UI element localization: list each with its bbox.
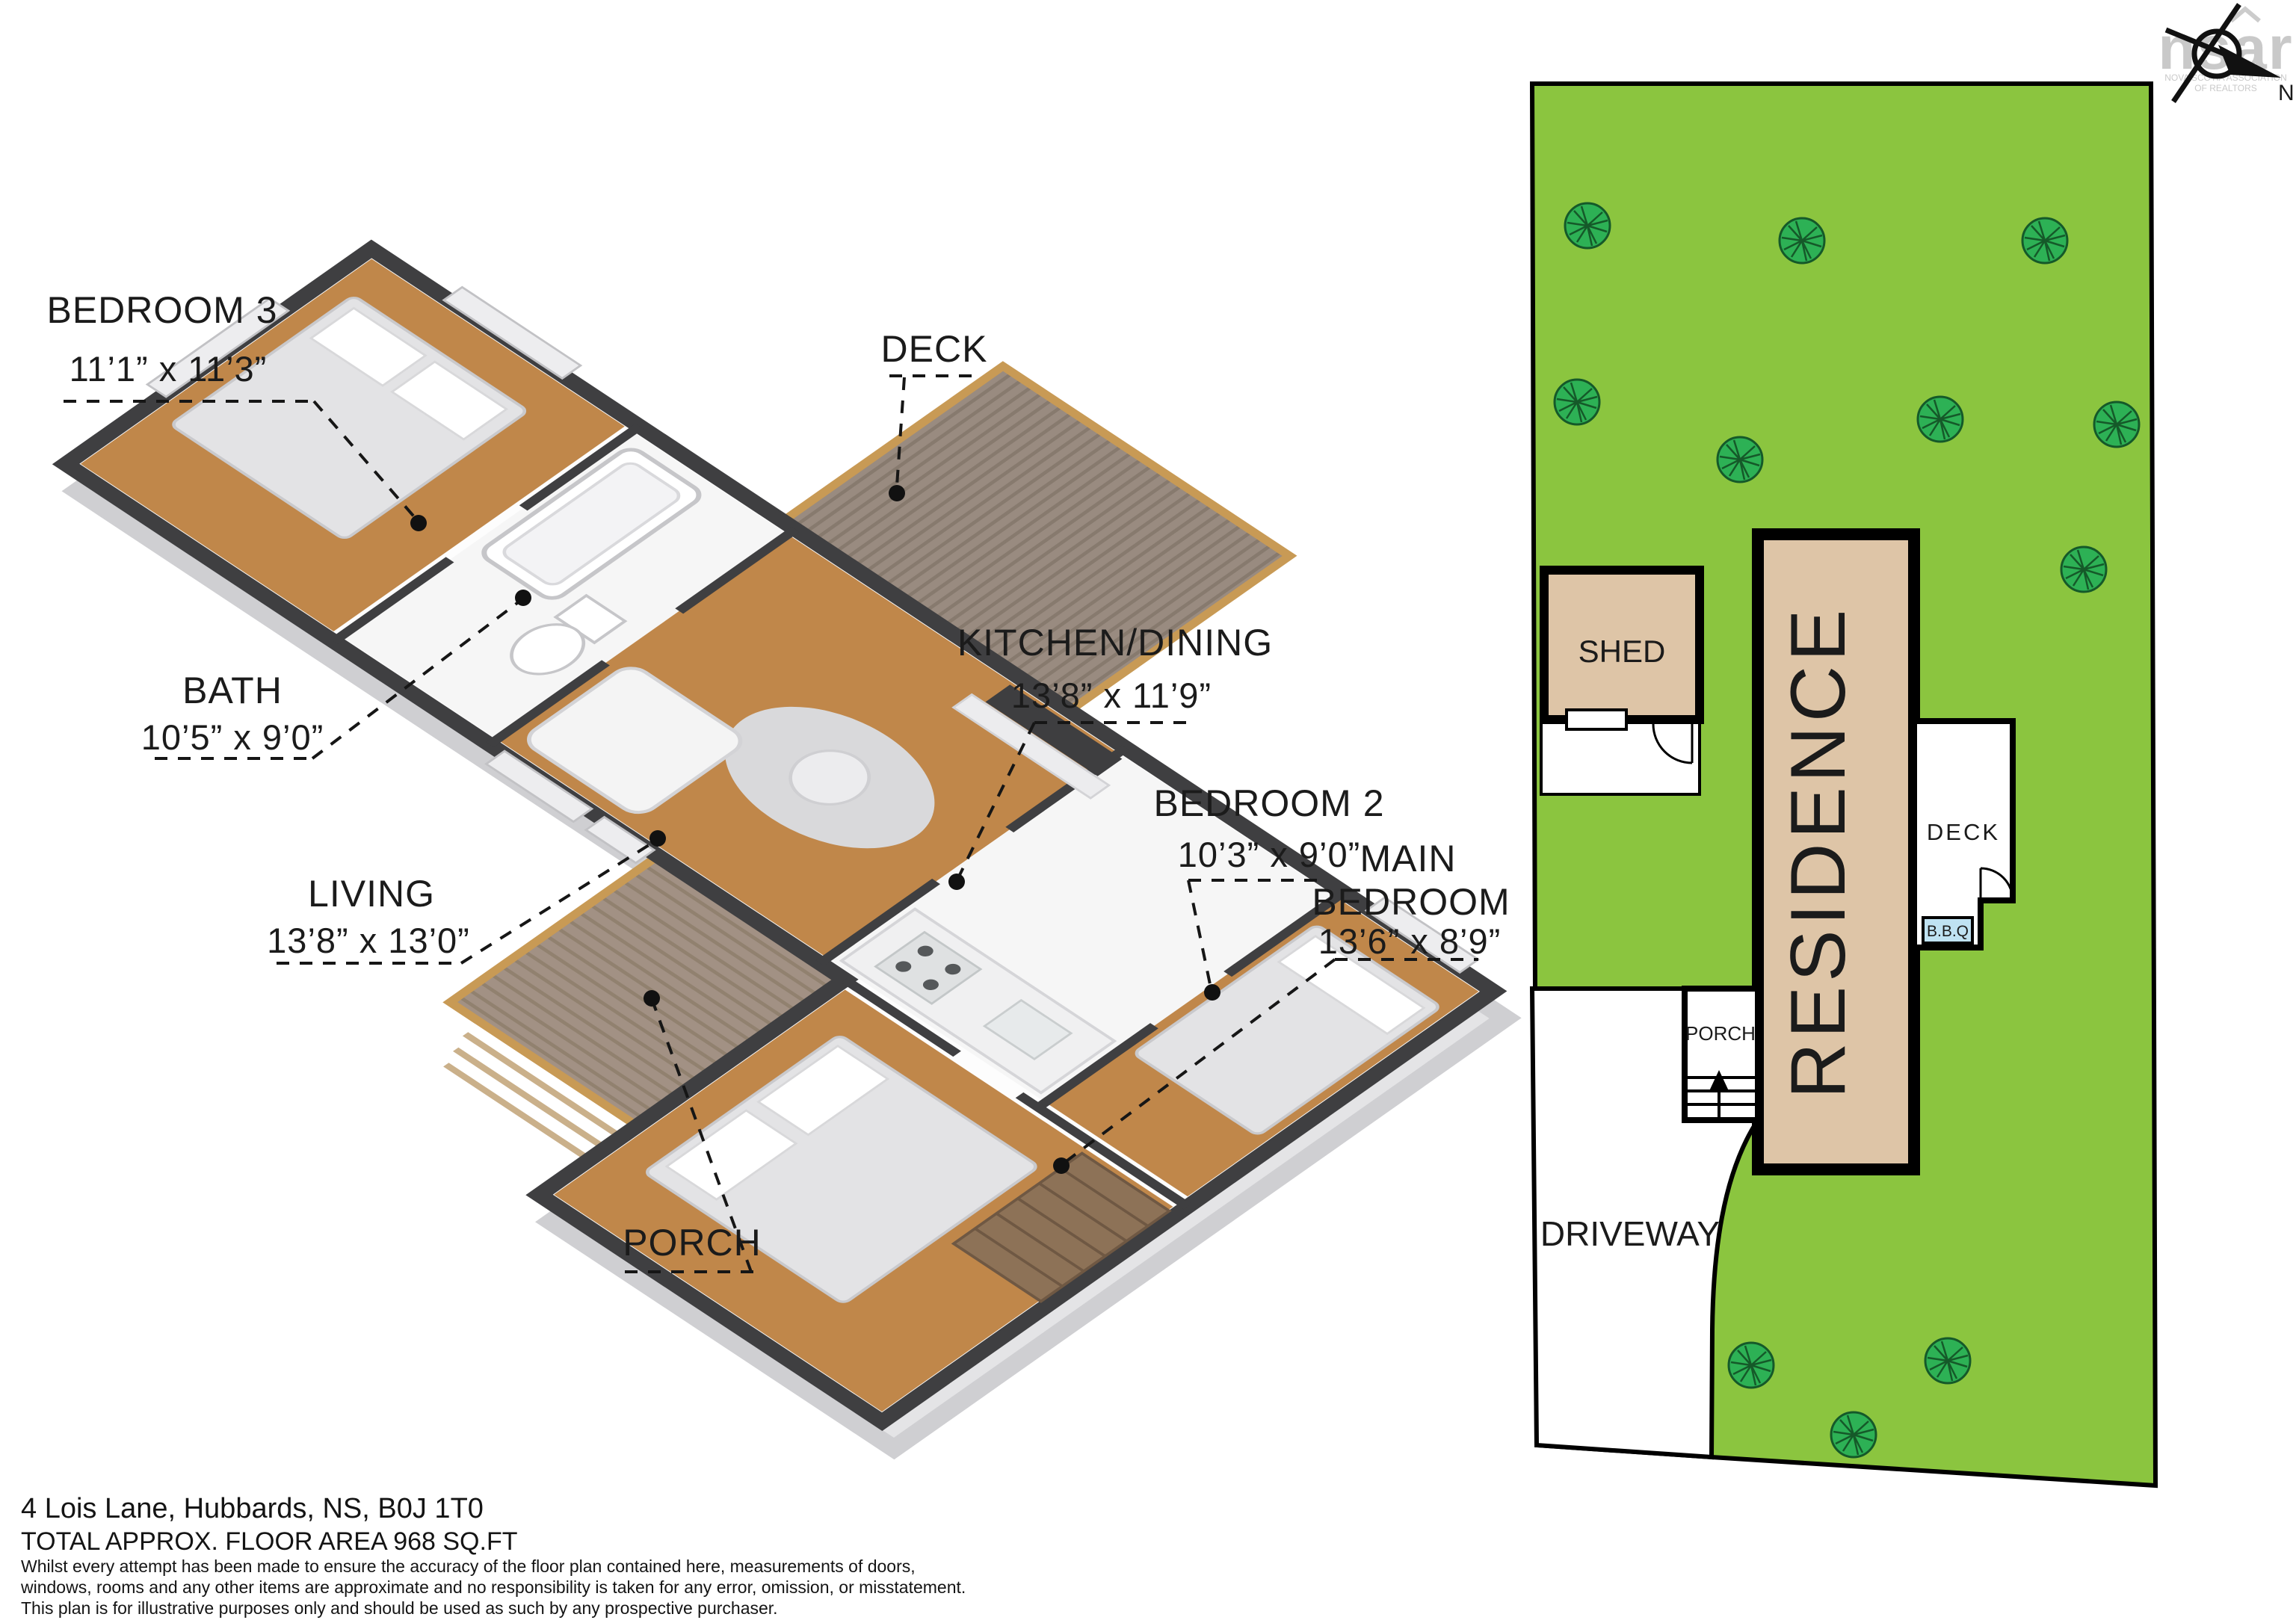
watermark-caption-2: OF REALTORS: [2194, 83, 2257, 93]
kitchen-dining-dims: 13’8” x 11’9”: [1011, 676, 1212, 715]
porch-label: PORCH: [623, 1222, 762, 1264]
compass-north: N: [2278, 81, 2295, 105]
shed-label: SHED: [1578, 634, 1666, 669]
floorplan-3d: BEDROOM 3 11’1” x 11’3” DECK BATH 10’5” …: [0, 83, 1714, 1448]
tree-icon: [1925, 1338, 1970, 1383]
bedroom2-label: BEDROOM 2: [1153, 782, 1384, 824]
property-address: 4 Lois Lane, Hubbards, NS, B0J 1T0: [21, 1493, 484, 1525]
bedroom3-label: BEDROOM 3: [46, 289, 277, 331]
floorplan-sheet: BEDROOM 3 11’1” x 11’3” DECK BATH 10’5” …: [0, 0, 2296, 1623]
tree-icon: [2061, 547, 2106, 592]
site-plan: DRIVEWAY SHED RESIDENCE DECK B.B.: [1532, 84, 2155, 1486]
tree-icon: [1729, 1343, 1774, 1388]
main-bedroom-dims: 13’6” x 8’9”: [1318, 921, 1502, 961]
driveway-label: DRIVEWAY: [1540, 1214, 1720, 1253]
deck-label: DECK: [881, 328, 988, 370]
site-deck-label: DECK: [1927, 819, 2000, 845]
residence-label: RESIDENCE: [1775, 605, 1862, 1099]
disclaimer-line-2: windows, rooms and any other items are a…: [21, 1577, 966, 1598]
living-dims: 13’8” x 13’0”: [267, 921, 470, 960]
bath-dims: 10’5” x 9’0”: [141, 717, 324, 757]
tree-icon: [1565, 203, 1610, 248]
main-bedroom-label-2: BEDROOM: [1312, 881, 1510, 923]
bbq-label: B.B.Q: [1927, 923, 1969, 940]
floor-area-total: TOTAL APPROX. FLOOR AREA 968 SQ.FT: [21, 1527, 517, 1556]
tree-icon: [1831, 1412, 1876, 1457]
tree-icon: [1718, 437, 1762, 482]
tree-icon: [1918, 397, 1963, 442]
bedroom2-dims: 10’3” x 9’0”: [1178, 835, 1361, 874]
main-bedroom-label-1: MAIN: [1360, 838, 1457, 879]
disclaimer-line-1: Whilst every attempt has been made to en…: [21, 1556, 916, 1577]
tree-icon: [1555, 380, 1599, 424]
plan-canvas: BEDROOM 3 11’1” x 11’3” DECK BATH 10’5” …: [0, 0, 2296, 1623]
living-label: LIVING: [308, 873, 435, 915]
tree-icon: [1780, 218, 1824, 263]
tree-icon: [2022, 218, 2067, 263]
site-porch: [1685, 989, 1758, 1120]
bath-label: BATH: [182, 670, 283, 711]
disclaimer-line-3: This plan is for illustrative purposes o…: [21, 1598, 778, 1619]
shed-window: [1567, 710, 1626, 729]
site-porch-label: PORCH: [1685, 1022, 1756, 1045]
bedroom3-dims: 11’1” x 11’3”: [70, 349, 268, 389]
kitchen-dining-label: KITCHEN/DINING: [957, 622, 1273, 664]
tree-icon: [2094, 402, 2139, 447]
